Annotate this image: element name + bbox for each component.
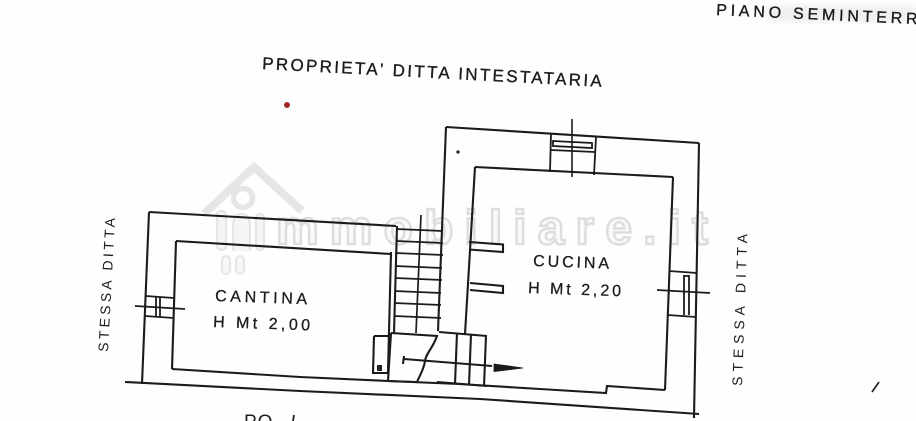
svg-text:PO: PO bbox=[244, 412, 273, 421]
svg-text:mmobiliare.it: mmobiliare.it bbox=[276, 202, 708, 255]
svg-text:H Mt 2,00: H Mt 2,00 bbox=[213, 314, 311, 334]
svg-text:CANTINA: CANTINA bbox=[215, 288, 308, 308]
svg-text:H Mt 2,20: H Mt 2,20 bbox=[528, 280, 622, 300]
svg-text:STESSA DITTA: STESSA DITTA bbox=[729, 233, 750, 386]
svg-text:PROPRIETA' DITTA INTESTATARI: PROPRIETA' DITTA INTESTATARIA bbox=[262, 54, 603, 91]
svg-text:STESSA DITTA: STESSA DITTA bbox=[95, 217, 118, 352]
svg-text:CUCINA: CUCINA bbox=[533, 253, 610, 273]
